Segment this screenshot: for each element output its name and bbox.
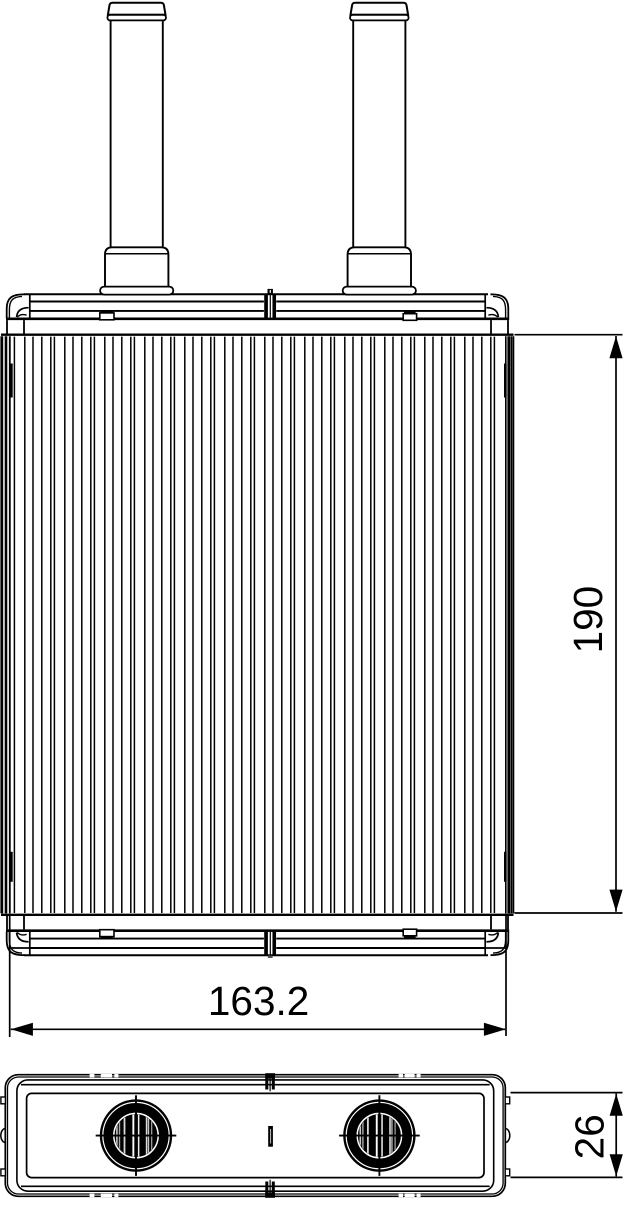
svg-text:163.2: 163.2 [208,978,309,1024]
svg-text:190: 190 [565,586,611,654]
svg-text:26: 26 [566,1114,612,1159]
